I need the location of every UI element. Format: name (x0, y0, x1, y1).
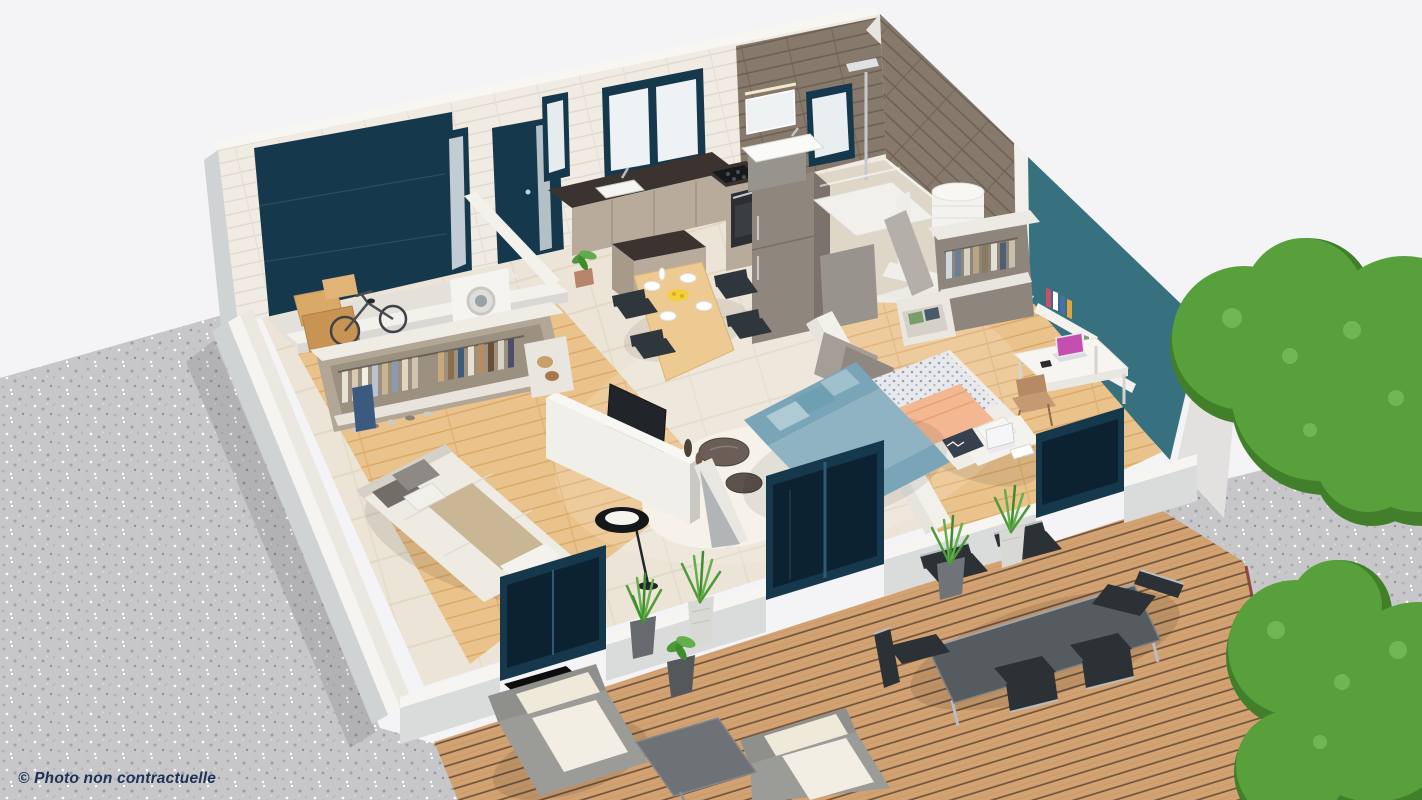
plate (680, 274, 696, 283)
door-handle (526, 190, 531, 195)
bag (537, 356, 553, 368)
garment-navy (352, 384, 376, 432)
floor-plan-svg: © Photo non contractuelle (0, 0, 1422, 800)
window-sidelight (444, 127, 472, 280)
vase (684, 439, 692, 457)
bag (545, 371, 559, 381)
floor-plan-render: © Photo non contractuelle (0, 0, 1422, 800)
plate (660, 312, 676, 321)
drawer-unit (896, 290, 956, 346)
side-unit-bags (524, 336, 574, 398)
plate (696, 302, 712, 311)
laptop-screen (1056, 333, 1084, 357)
copyright-caption: © Photo non contractuelle (18, 770, 216, 787)
plate (644, 282, 660, 291)
bottle (659, 268, 665, 280)
window-hall (542, 92, 570, 182)
fruit-bowl (667, 289, 689, 301)
bathroom-window (806, 83, 855, 167)
